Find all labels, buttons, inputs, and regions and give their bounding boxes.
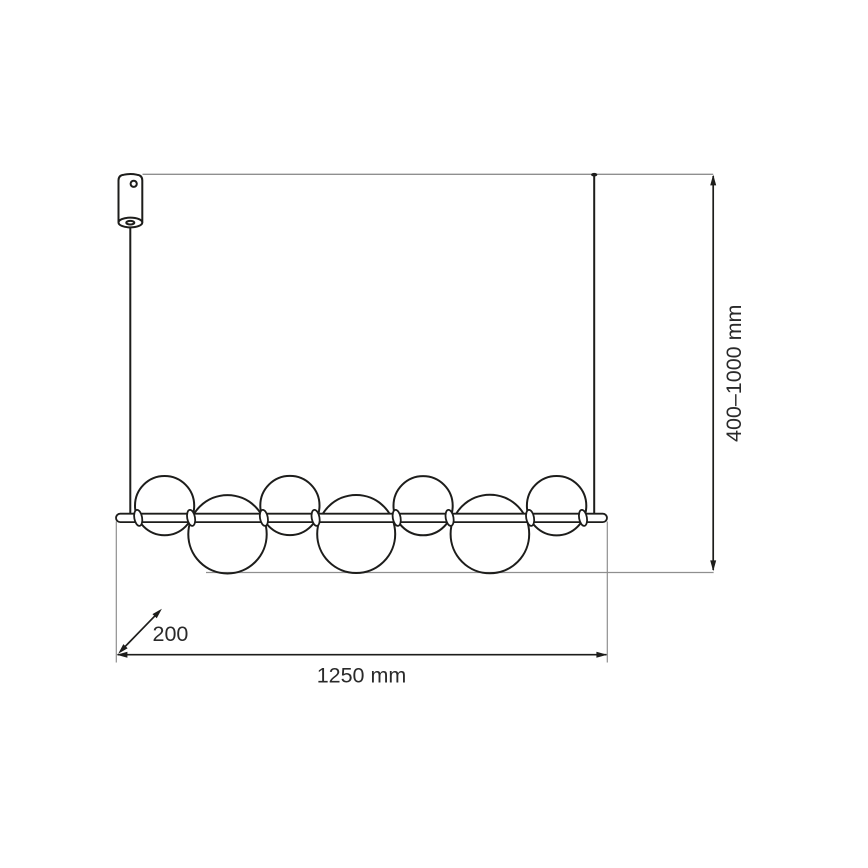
svg-text:200: 200 [153,622,189,646]
svg-text:400–1000 mm: 400–1000 mm [722,305,746,442]
svg-text:1250 mm: 1250 mm [317,664,407,688]
